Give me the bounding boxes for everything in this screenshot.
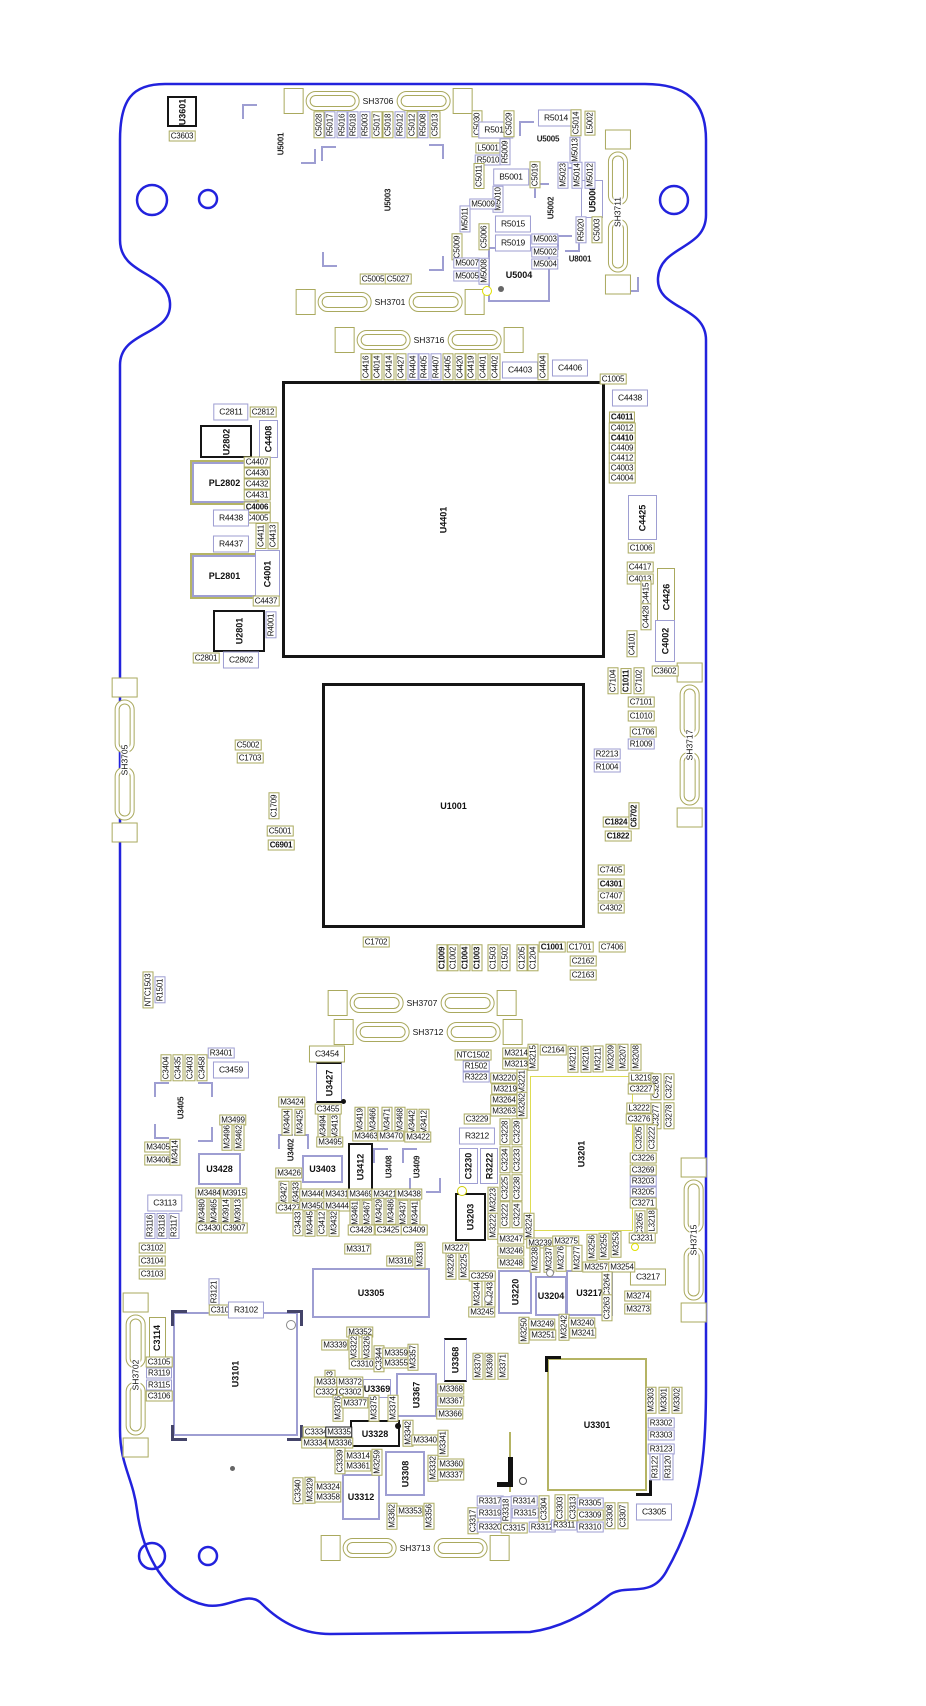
component-label-m3255: M3255 — [599, 1232, 610, 1259]
component-label-c3404: C3404 — [161, 1055, 172, 1082]
component-label-r4438: R4438 — [213, 510, 249, 527]
component-designator: U3217 — [576, 1288, 603, 1298]
fiducial-ring — [631, 1243, 639, 1251]
component-designator: U3367 — [412, 1382, 422, 1409]
component-label-r5003: R5003 — [360, 112, 371, 139]
component-label-c7405: C7405 — [598, 865, 625, 876]
component-label-m3335: M3335 — [325, 1427, 352, 1438]
component-label-c1005: C1005 — [600, 374, 627, 385]
component-label-m3495: M3495 — [316, 1137, 343, 1148]
component-label-c3428: C3428 — [348, 1225, 375, 1236]
component-label-c2801: C2801 — [193, 653, 220, 664]
component-label-m3219: M3219 — [491, 1084, 518, 1095]
component-label-c3310: C3310 — [349, 1359, 376, 1370]
component-label-c1702: C1702 — [363, 937, 390, 948]
component-label-c5018: C5018 — [383, 112, 394, 139]
component-designator: U3427 — [324, 1069, 334, 1096]
component-label-m5005: M5005 — [453, 271, 480, 282]
component-label-r3320: R3320 — [477, 1522, 504, 1533]
component-designator: C4408 — [264, 426, 274, 453]
component-label-c2163: C2163 — [570, 970, 597, 981]
component-label-m3470: M3470 — [377, 1131, 404, 1142]
shield-contact — [447, 330, 501, 350]
component-label-c4101: C4101 — [627, 631, 638, 658]
component-label-c6702: C6702 — [629, 803, 640, 830]
shield-sh3712: SH3712 — [334, 1019, 523, 1045]
component-label-m5004: M5004 — [531, 259, 558, 270]
component-designator: U5006 — [587, 186, 597, 213]
component-label-c3105: C3105 — [146, 1357, 173, 1368]
component-designator: U3305 — [358, 1288, 385, 1298]
component-label-c4438: C4438 — [612, 390, 648, 407]
shield-sh3716: SH3716 — [335, 327, 524, 353]
component-label-c2811: C2811 — [213, 404, 248, 421]
corner-bracket — [519, 121, 534, 136]
shield-pad — [681, 1303, 707, 1323]
component-label-c3303: C3303 — [555, 1495, 566, 1522]
component-label-r3212: R3212 — [459, 1128, 495, 1145]
component-designator: U3368 — [451, 1347, 461, 1374]
component-label-m3248: M3248 — [497, 1258, 524, 1269]
component-label-r3203: R3203 — [630, 1176, 657, 1187]
component-label-c1001: C1001 — [539, 942, 566, 953]
component-label-c4411: C4411 — [256, 523, 267, 549]
component-label-r4437: R4437 — [213, 536, 249, 553]
component-label-m3302: M3302 — [672, 1386, 683, 1413]
component-label-r3121: R3121 — [209, 1279, 220, 1306]
shield-pad — [677, 663, 703, 683]
component-u3308: U3308 — [385, 1451, 425, 1496]
component-label-m3463: M3463 — [352, 1131, 379, 1142]
component-label-c4431: C4431 — [244, 490, 271, 501]
component-label-m3276: M3276 — [556, 1244, 567, 1271]
component-label-r3122: R3122 — [650, 1454, 661, 1481]
shield-pad — [605, 275, 631, 295]
component-label-c4416: C4416 — [361, 354, 372, 381]
component-label-r4405: R4405 — [419, 354, 430, 381]
component-label-m3465: M3465 — [209, 1197, 220, 1224]
component-label-m3220: M3220 — [490, 1073, 517, 1084]
component-label-m3496: M3496 — [222, 1123, 233, 1150]
fiducial-dot — [395, 1423, 401, 1429]
component-label-m3374: M3374 — [388, 1394, 399, 1421]
component-label-c5002: C5002 — [235, 740, 262, 751]
component-label-m3360: M3360 — [437, 1459, 464, 1470]
corner-bracket — [154, 1124, 169, 1139]
corner-bracket — [429, 256, 444, 271]
component-designator: U3601 — [177, 98, 187, 125]
component-label-c3304: C3304 — [539, 1496, 550, 1523]
corner-bracket — [242, 104, 257, 119]
component-designator: C4001 — [263, 560, 273, 587]
component-label-c4437: C4437 — [253, 596, 280, 607]
component-label-m3422: M3422 — [404, 1132, 431, 1143]
component-label-r5009: R5009 — [500, 139, 511, 166]
component-u3305: U3305 — [312, 1268, 430, 1318]
shield-designator: SH3701 — [374, 298, 407, 307]
component-label-m3406: M3406 — [144, 1155, 171, 1166]
component-label-m3226: M3226 — [446, 1252, 457, 1279]
component-label-m3247: M3247 — [497, 1234, 524, 1245]
component-label-c7407: C7407 — [598, 891, 625, 902]
component-label-c1701: C1701 — [567, 942, 594, 953]
corner-mark — [171, 1310, 187, 1326]
component-label-m5011: M5011 — [460, 206, 471, 233]
component-label-r3119: R3119 — [146, 1368, 172, 1379]
shield-pad — [502, 1019, 522, 1045]
component-label-l5001: L5001 — [475, 143, 500, 154]
component-c3230: C3230 — [459, 1148, 478, 1184]
component-designator: U3328 — [362, 1429, 389, 1439]
shield-pad — [489, 1535, 509, 1561]
component-label-m3375: M3375 — [369, 1394, 380, 1421]
component-label-c3409: C3409 — [401, 1225, 428, 1236]
component-label-m3274: M3274 — [624, 1291, 651, 1302]
component-designator: U3403 — [309, 1164, 336, 1174]
component-label-m3353: M3353 — [396, 1506, 423, 1517]
component-label-r3314: R3314 — [511, 1496, 538, 1507]
component-label-m3426: M3426 — [275, 1168, 302, 1179]
component-label-r1009: R1009 — [628, 739, 655, 750]
component-label-c1006: C1006 — [628, 543, 655, 554]
component-label-c3305: C3305 — [636, 1504, 672, 1521]
component-label-c5006: C5006 — [479, 224, 490, 251]
component-label-c3307: C3307 — [618, 1503, 629, 1530]
component-designator: U3312 — [348, 1492, 375, 1502]
component-label-u3409: U3409 — [412, 1154, 423, 1181]
component-label-c1709: C1709 — [269, 793, 280, 820]
component-label-r5012: R5012 — [395, 112, 406, 139]
component-label-m5008: M5008 — [479, 257, 490, 284]
component-label-m3224: M3224 — [524, 1212, 535, 1239]
component-label-m3244: M3244 — [472, 1280, 483, 1307]
component-label-m3361: M3361 — [344, 1461, 371, 1472]
fiducial-dot — [230, 1466, 235, 1471]
corner-bracket — [198, 1127, 213, 1142]
corner-mark — [545, 1356, 561, 1372]
component-label-m5007: M5007 — [453, 258, 480, 269]
component-label-c3459: C3459 — [213, 1062, 249, 1079]
component-label-l5002: L5002 — [585, 110, 596, 135]
component-label-c4420: C4420 — [455, 354, 466, 381]
component-label-m3445: M3445 — [305, 1209, 316, 1236]
shield-designator: SH3716 — [413, 336, 446, 345]
shield-contact — [396, 91, 450, 111]
component-label-c4302: C4302 — [598, 903, 625, 914]
component-label-c3603: C3603 — [169, 131, 196, 142]
component-label-r3102: R3102 — [228, 1302, 264, 1319]
component-label-c3430: C3430 — [196, 1223, 223, 1234]
component-label-ntc1502: NTC1502 — [455, 1050, 492, 1061]
component-designator: U2802 — [221, 428, 231, 455]
fiducial-ring — [286, 1320, 296, 1330]
shield-contact — [318, 292, 372, 312]
component-label-c2162: C2162 — [570, 956, 597, 967]
component-label-c3458: C3458 — [197, 1055, 208, 1082]
component-label-c5003: C5003 — [592, 217, 603, 244]
component-label-c4401: C4401 — [478, 354, 489, 381]
component-label-m3303: M3303 — [646, 1386, 657, 1413]
component-label-c4004: C4004 — [609, 473, 636, 484]
component-label-c5013: C5013 — [430, 112, 441, 139]
component-label-r5015: R5015 — [495, 216, 531, 233]
component-label-c3227: C3227 — [628, 1084, 655, 1095]
component-u3220: U3220 — [498, 1270, 532, 1314]
component-label-m3369: M3369 — [485, 1352, 496, 1379]
component-label-c7102: C7102 — [634, 668, 645, 695]
component-label-r5018: R5018 — [348, 112, 359, 139]
component-label-c3226: C3226 — [630, 1153, 657, 1164]
fiducial-ring — [546, 1269, 554, 1277]
component-label-m3209: M3209 — [606, 1043, 617, 1070]
shield-pad — [284, 88, 304, 114]
component-u3301: U3301 — [547, 1358, 647, 1491]
component-designator: U3204 — [538, 1291, 565, 1301]
component-label-c4427: C4427 — [396, 354, 407, 381]
component-designator: U3201 — [577, 1140, 587, 1167]
component-label-c3403: C3403 — [185, 1055, 196, 1082]
corner-bracket — [301, 149, 316, 164]
component-label-m3207: M3207 — [618, 1043, 629, 1070]
component-label-m3405: M3405 — [144, 1142, 171, 1153]
component-label-c5029: C5029 — [504, 111, 515, 138]
component-label-c4430: C4430 — [244, 468, 271, 479]
component-label-m3424: M3424 — [278, 1097, 305, 1108]
component-label-m3253: M3253 — [611, 1230, 622, 1257]
component-u3403: U3403 — [302, 1155, 343, 1183]
component-label-m3486: M3486 — [386, 1197, 397, 1224]
component-label-c2812: C2812 — [250, 407, 277, 418]
component-label-c1002: C1002 — [448, 945, 459, 972]
component-u2802: U2802 — [200, 425, 252, 458]
shield-pad — [496, 990, 516, 1016]
component-label-r5014: R5014 — [538, 110, 574, 127]
component-u3601: U3601 — [167, 96, 197, 127]
component-label-r5019: R5019 — [495, 235, 531, 252]
component-label-r3401: R3401 — [208, 1048, 235, 1059]
shield-designator: SH3702 — [132, 1359, 141, 1392]
component-u3428: U3428 — [198, 1153, 241, 1185]
component-label-r3315: R3315 — [512, 1508, 539, 1519]
shield-designator: SH3717 — [686, 729, 695, 762]
component-label-c3228: C3228 — [500, 1119, 511, 1146]
component-label-m3215: M3215 — [528, 1043, 539, 1070]
component-label-c3433: C3433 — [293, 1210, 304, 1237]
component-label-c3103: C3103 — [139, 1269, 166, 1280]
shield-sh3711: SH3711 — [602, 130, 634, 295]
component-label-m3212: M3212 — [568, 1045, 579, 1072]
component-label-c4419: C4419 — [466, 354, 477, 381]
component-label-r3120: R3120 — [663, 1454, 674, 1481]
component-label-r3303: R3303 — [648, 1430, 675, 1441]
corner-bracket — [426, 1178, 441, 1193]
component-label-c4402: C4402 — [490, 354, 501, 381]
shield-pad — [452, 88, 472, 114]
component-label-m3429: M3429 — [374, 1197, 385, 1224]
shield-pad — [296, 289, 316, 315]
shield-sh3717: SH3717 — [674, 663, 707, 828]
component-label-m3441: M3441 — [410, 1199, 421, 1226]
corner-bracket — [321, 146, 336, 161]
shield-contact — [408, 292, 462, 312]
component-label-c3239: C3239 — [512, 1119, 523, 1146]
component-label-c5027: C5027 — [385, 274, 412, 285]
component-label-c5017: C5017 — [372, 112, 383, 139]
component-label-m3377: M3377 — [341, 1398, 368, 1409]
component-label-m3355: M3355 — [382, 1358, 409, 1369]
component-label-r4404: R4404 — [408, 354, 419, 381]
component-label-c3238: C3238 — [512, 1175, 523, 1202]
component-designator: U4401 — [439, 506, 449, 533]
pcb-board: U3601U2802PL2802PL2801U2801C4408C4001U50… — [0, 0, 926, 1706]
component-label-r5016: R5016 — [337, 112, 348, 139]
component-label-m3301: M3301 — [659, 1386, 670, 1413]
component-label-c5019: C5019 — [530, 162, 541, 189]
component-u3328: U3328 — [350, 1420, 400, 1447]
component-label-m5009: M5009 — [469, 199, 496, 210]
component-label-m3211: M3211 — [593, 1046, 604, 1073]
component-label-m5013: M5013 — [570, 136, 581, 163]
component-label-m3467: M3467 — [362, 1199, 373, 1226]
component-label-c3602: C3602 — [652, 666, 679, 677]
component-label-c2802: C2802 — [223, 652, 259, 669]
component-label-c1011: C1011 — [621, 668, 632, 694]
component-label-c3315: C3315 — [501, 1523, 528, 1534]
component-label-c3454: C3454 — [309, 1046, 345, 1063]
component-label-m3262: M3262 — [517, 1091, 528, 1118]
component-label-c4404: C4404 — [538, 354, 549, 381]
component-label-c3113: C3113 — [147, 1195, 182, 1212]
component-label-m5002: M5002 — [531, 247, 558, 258]
component-label-m3273: M3273 — [624, 1304, 651, 1315]
component-label-m3277: M3277 — [572, 1244, 583, 1271]
component-label-c3425: C3425 — [375, 1225, 402, 1236]
component-label-m3251: M3251 — [529, 1330, 556, 1341]
component-label-c4413: C4413 — [268, 523, 279, 550]
component-label-r1502: R1502 — [463, 1061, 490, 1072]
component-label-m3341: M3341 — [438, 1429, 449, 1456]
component-label-c4011: C4011 — [609, 412, 635, 423]
component-label-m3263: M3263 — [490, 1106, 517, 1117]
component-label-r3223: R3223 — [463, 1072, 490, 1083]
component-label-c5014: C5014 — [571, 110, 582, 137]
component-label-m3210: M3210 — [581, 1045, 592, 1072]
component-designator: C4426 — [661, 583, 671, 610]
component-label-c3435: C3435 — [173, 1055, 184, 1082]
component-label-c3106: C3106 — [146, 1391, 173, 1402]
component-label-m3404: M3404 — [282, 1108, 293, 1135]
component-label-c4301: C4301 — [598, 879, 625, 890]
component-label-c4414: C4414 — [384, 354, 395, 381]
shield-designator: SH3706 — [362, 97, 395, 106]
corner-bracket — [198, 1082, 213, 1097]
component-u2801: U2801 — [213, 610, 265, 652]
component-label-m3318: M3318 — [415, 1241, 426, 1268]
shield-contact — [350, 993, 404, 1013]
corner-mark — [171, 1425, 187, 1441]
component-label-m3340: M3340 — [411, 1435, 438, 1446]
component-label-m3414: M3414 — [170, 1138, 181, 1165]
component-label-m3913: M3913 — [233, 1197, 244, 1224]
component-label-c4403: C4403 — [502, 362, 538, 379]
component-label-u3402: U3402 — [286, 1137, 297, 1164]
component-designator: U3369 — [364, 1384, 391, 1394]
corner-bracket — [322, 252, 337, 267]
component-label-c7406: C7406 — [599, 942, 626, 953]
component-label-r4001: R4001 — [266, 612, 277, 639]
component-label-u5003: U5003 — [383, 187, 394, 214]
shield-contact — [446, 1022, 500, 1042]
component-label-c1010: C1010 — [628, 711, 655, 722]
component-label-c5001: C5001 — [267, 826, 294, 837]
component-label-r3305: R3305 — [577, 1498, 604, 1509]
component-label-c1824: C1824 — [603, 817, 630, 828]
shield-designator: SH3713 — [399, 1544, 432, 1553]
component-label-b5001: B5001 — [493, 169, 529, 186]
component-label-m5023: M5023 — [558, 161, 569, 188]
component-label-m3367: M3367 — [437, 1396, 464, 1407]
shield-designator: SH3715 — [690, 1224, 699, 1257]
component-designator: U5004 — [506, 270, 533, 280]
component-u3101: U3101 — [173, 1312, 298, 1436]
component-label-u5002: U5002 — [546, 195, 557, 222]
component-label-c1009: C1009 — [437, 945, 448, 972]
component-label-c2164: C2164 — [540, 1045, 567, 1056]
component-label-c7101: C7101 — [628, 697, 655, 708]
shield-pad — [112, 678, 138, 698]
component-c4002: C4002 — [655, 620, 675, 662]
component-label-m3438: M3438 — [395, 1189, 422, 1200]
fiducial-ring — [457, 1186, 467, 1196]
fiducial-ring — [484, 1295, 492, 1303]
component-label-m3370: M3370 — [473, 1352, 484, 1379]
component-label-m3249: M3249 — [528, 1319, 555, 1330]
component-designator: U3220 — [510, 1279, 520, 1306]
shield-sh3715: SH3715 — [678, 1158, 711, 1323]
shield-contact — [440, 993, 494, 1013]
corner-bracket — [557, 235, 572, 250]
component-label-u3405: U3405 — [176, 1095, 187, 1122]
component-label-m3334: M3334 — [301, 1438, 328, 1449]
component-label-c1502: C1502 — [500, 945, 511, 972]
component-label-m3432: M3432 — [329, 1209, 340, 1236]
component-designator: U3412 — [356, 1154, 366, 1181]
component-label-l3222: L3222 — [626, 1103, 651, 1114]
fiducial-dot — [498, 286, 504, 292]
component-label-ntc1503: NTC1503 — [143, 972, 154, 1009]
component-label-m3256: M3256 — [587, 1233, 598, 1260]
component-label-m3356: M3356 — [424, 1502, 435, 1529]
component-label-m3238: M3238 — [530, 1245, 541, 1272]
component-designator: U3101 — [231, 1361, 241, 1388]
component-designator: R3222 — [484, 1153, 494, 1180]
component-label-m3461: M3461 — [350, 1199, 361, 1226]
shield-pad — [334, 1019, 354, 1045]
component-label-m3208: M3208 — [631, 1043, 642, 1070]
component-label-m3366: M3366 — [436, 1409, 463, 1420]
component-label-r5008: R5008 — [418, 112, 429, 139]
component-label-c3222: C3222 — [647, 1125, 658, 1152]
shield-pad — [123, 1438, 149, 1458]
component-u1001: U1001 — [322, 683, 585, 928]
component-label-c4405: C4405 — [443, 354, 454, 381]
shield-designator: SH3707 — [406, 999, 439, 1008]
component-designator: C3114 — [153, 1324, 163, 1350]
shield-contact — [343, 1538, 397, 1558]
component-label-r3115: R3115 — [146, 1380, 172, 1391]
component-label-m3357: M3357 — [408, 1343, 419, 1370]
component-label-m3264: M3264 — [490, 1095, 517, 1106]
